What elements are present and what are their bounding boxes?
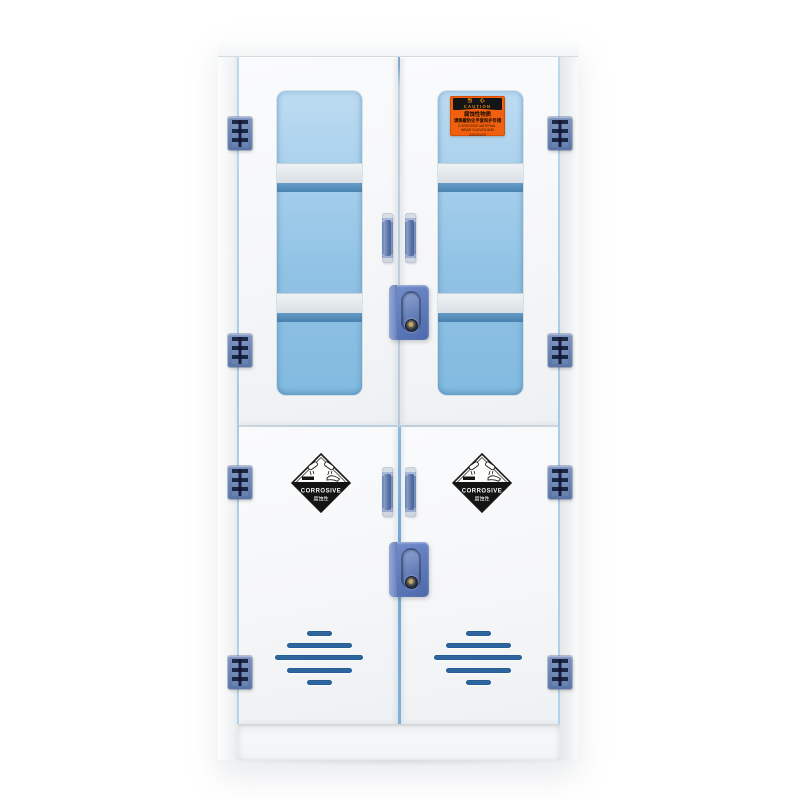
hinge-icon [548,656,572,689]
hinge-knuckles [232,337,248,364]
corrosive-text-en: CORROSIVE [301,489,342,495]
handle-grip [384,220,391,256]
right-door-gap-line [558,57,560,724]
hinge-icon [548,334,572,367]
upper-right-door-handle [405,213,416,263]
hinge-knuckles [552,120,568,147]
hinge-knuckles [552,469,568,496]
vent-slot [275,655,363,660]
shelf-shadow [438,183,523,192]
hinge-knuckles [552,659,568,686]
corrosive-text-cn: 腐蚀性 [474,496,489,503]
vent-slot [466,631,491,636]
left-glass-window [277,91,362,395]
corrosive-text-en: CORROSIVE [462,489,503,495]
chemical-safety-cabinet: 当 心 CAUTION 腐蚀性物质 请佩戴防化手套和护目镜 CORROSIVE … [218,38,578,760]
hinge-knuckles [232,120,248,147]
handle-grip [384,474,391,510]
product-photo-scene: 当 心 CAUTION 腐蚀性物质 请佩戴防化手套和护目镜 CORROSIVE … [0,0,800,800]
keyhole-icon [405,576,418,589]
left-door-gap-line [237,57,239,724]
cabinet-left-frame [218,57,238,760]
caution-label-header: 当 心 CAUTION [453,98,502,110]
hinge-knuckles [232,469,248,496]
cabinet-base-panel [238,724,560,760]
lower-door-lock [389,542,429,597]
lock-mount-tab [389,542,397,597]
shelf-edge [438,293,523,313]
corrosive-diamond-icon: CORROSIVE 腐蚀性 [289,451,353,515]
upper-left-door-handle [382,213,393,263]
shelf-shadow [277,313,362,322]
shelf-edge [277,293,362,313]
shelf-shadow [438,313,523,322]
cabinet-right-frame [558,57,578,760]
shelf-edge [277,163,362,183]
vent-slot [446,668,511,673]
vent-slot [287,643,352,648]
corrosive-diamond-icon: CORROSIVE 腐蚀性 [450,451,514,515]
handle-grip [407,474,414,510]
lock-mount-tab [389,285,397,340]
vent-slot [287,668,352,673]
vent-slot [434,655,522,660]
shelf-shadow [277,183,362,192]
hinge-knuckles [552,337,568,364]
vent-slot [466,680,491,685]
hinge-icon [548,466,572,499]
lower-left-door-handle [382,467,393,517]
caution-line2: 请佩戴防化手套和护目镜 [453,118,502,123]
cabinet-top-cap [218,38,578,57]
keyhole-icon [405,319,418,332]
corrosive-text-cn: 腐蚀性 [313,496,328,503]
caution-warning-label: 当 心 CAUTION 腐蚀性物质 请佩戴防化手套和护目镜 CORROSIVE … [450,96,505,136]
right-glass-window: 当 心 CAUTION 腐蚀性物质 请佩戴防化手套和护目镜 CORROSIVE … [438,91,523,395]
hinge-icon [228,656,252,689]
hinge-knuckles [232,659,248,686]
handle-grip [407,220,414,256]
shelf-edge [438,163,523,183]
hinge-icon [228,466,252,499]
upper-door-lock [389,285,429,340]
vent-slot [307,680,332,685]
caution-line4: WEAR GLOVES AND GOGGLES [453,128,502,136]
hinge-icon [228,334,252,367]
vent-slot [307,631,332,636]
upper-center-gap-line [398,57,400,425]
hinge-icon [548,117,572,150]
lower-right-door-handle [405,467,416,517]
caution-title-en: CAUTION [453,105,502,110]
hinge-icon [228,117,252,150]
vent-slot [446,643,511,648]
